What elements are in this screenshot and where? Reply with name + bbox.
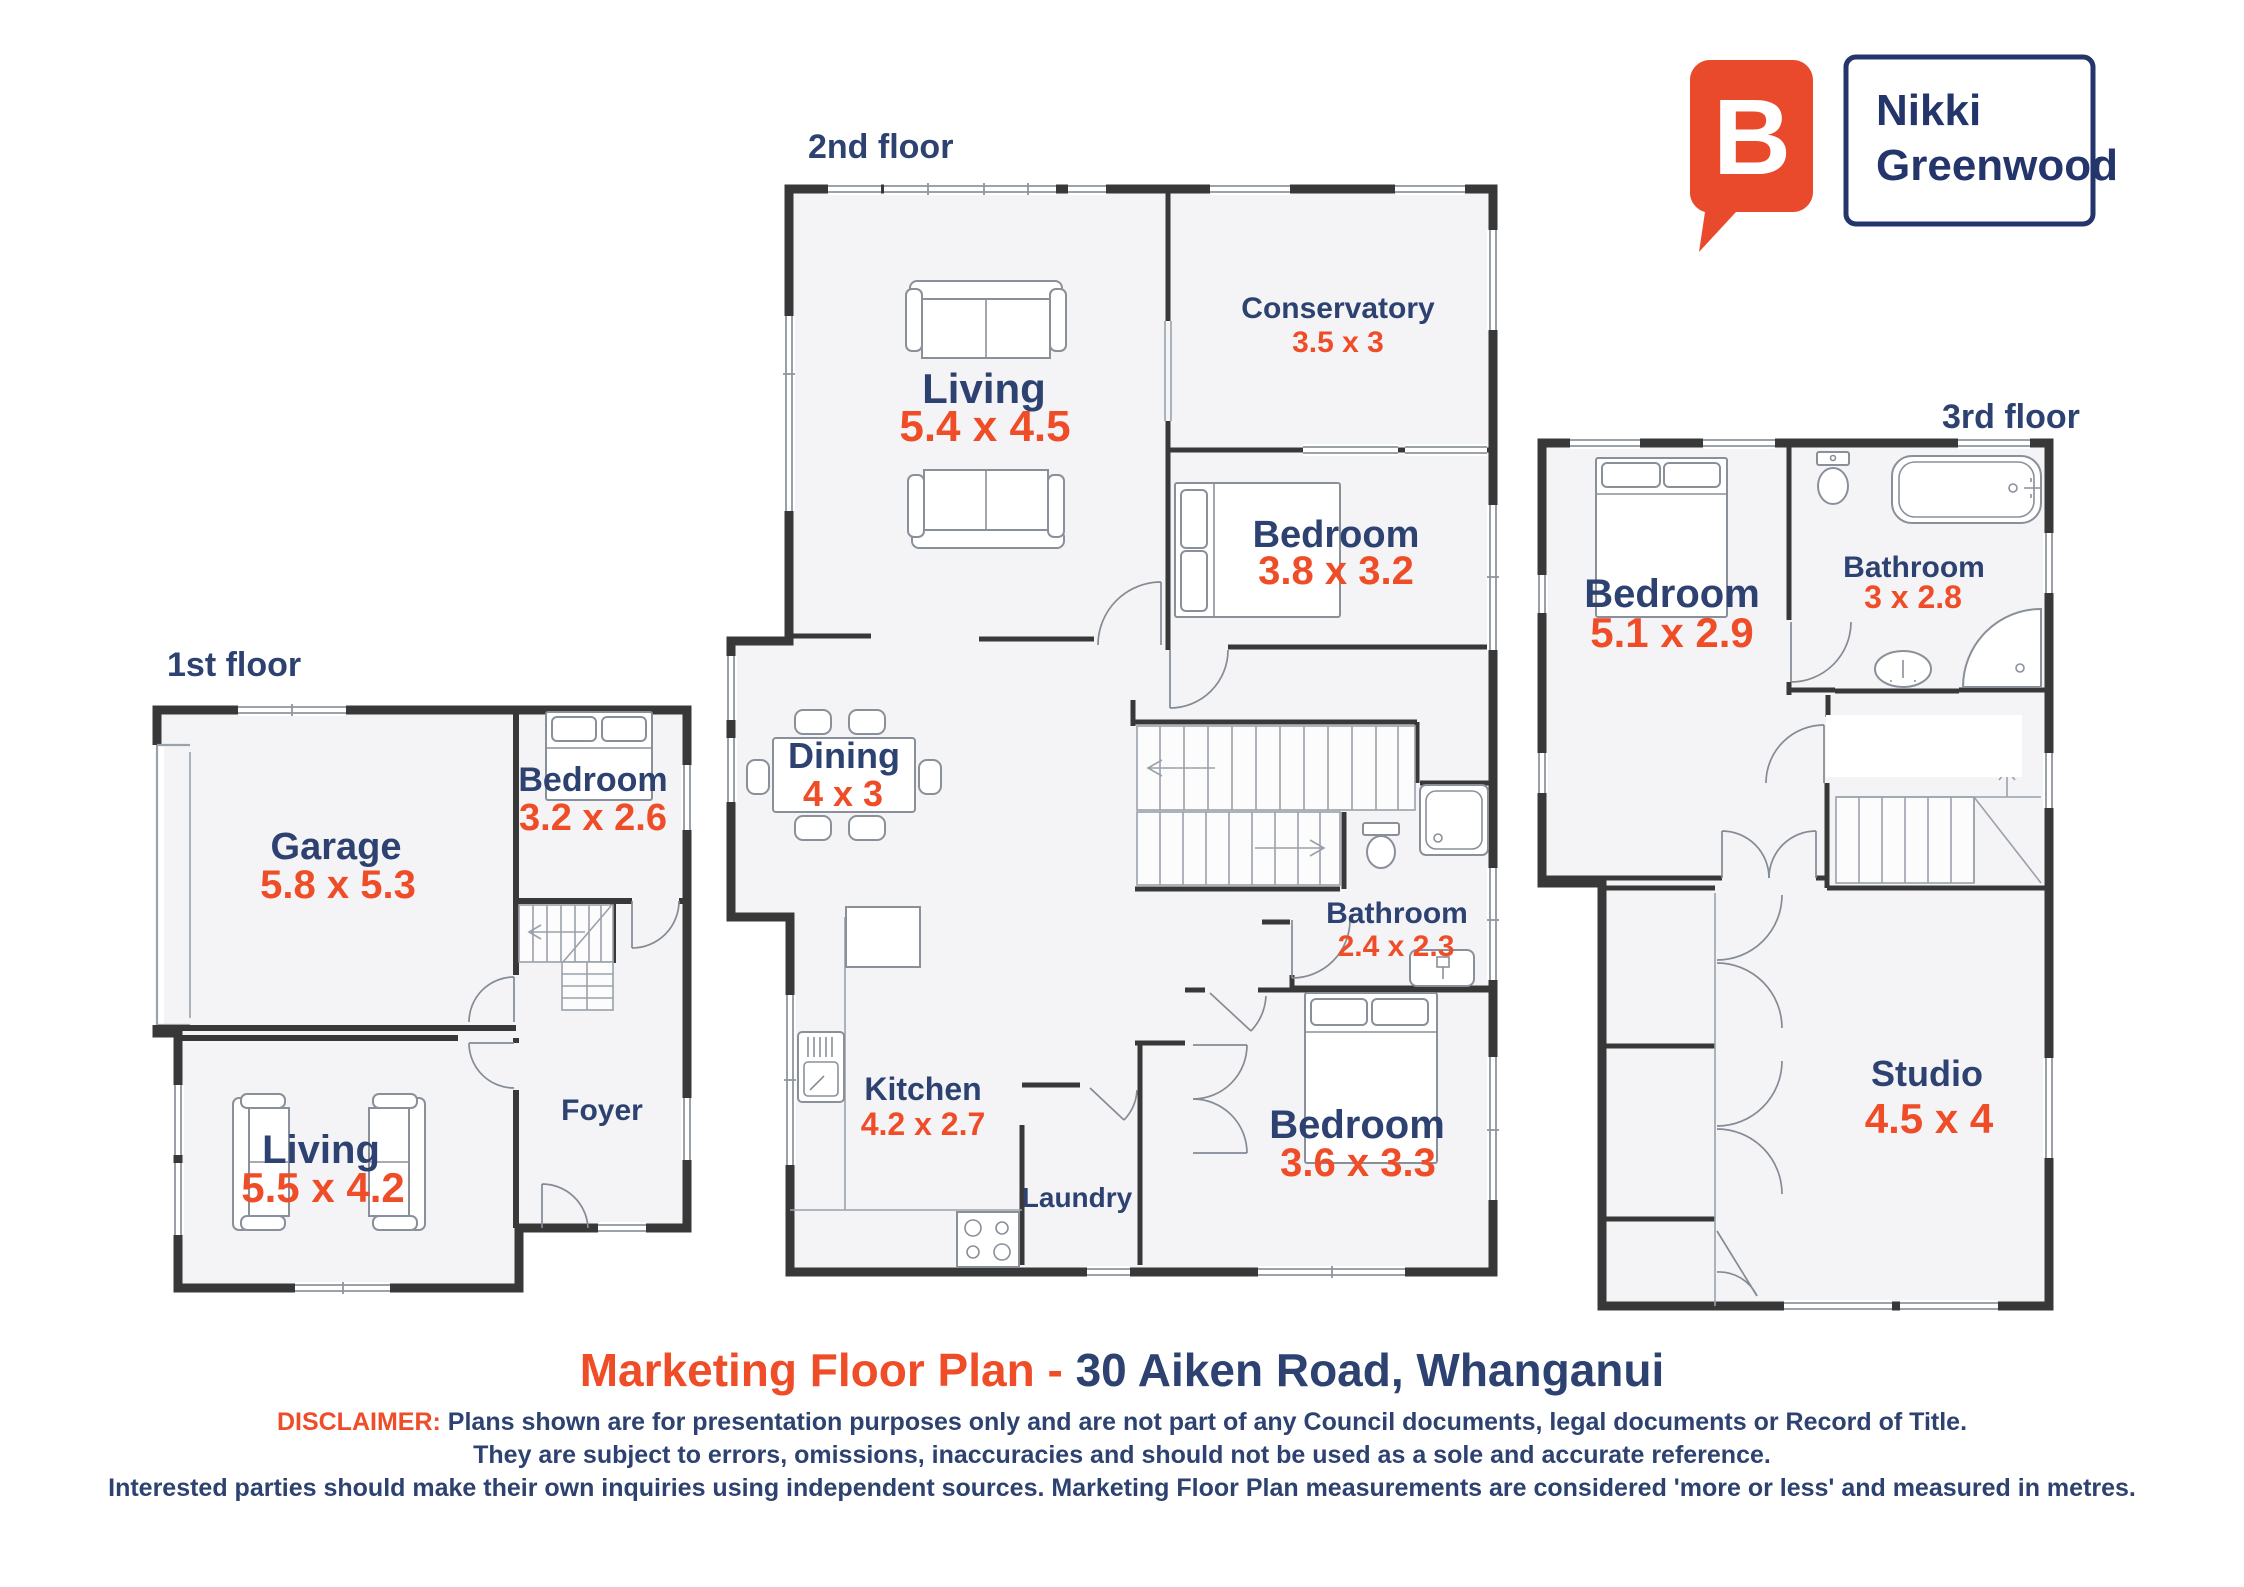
erased-label-patch	[1826, 715, 2022, 777]
room-name-foyer: Foyer	[561, 1094, 643, 1127]
floor-plan-3rd: 3rd floor Bedroom 5.1 x 2.9 Bathroom 3 x…	[1536, 398, 2080, 1312]
room-dims-studio: 4.5 x 4	[1865, 1095, 1994, 1142]
disclaimer-line1: DISCLAIMER: Plans shown are for presenta…	[277, 1408, 1967, 1436]
room-dims-living1: 5.5 x 4.2	[241, 1164, 404, 1211]
page-title: Marketing Floor Plan - 30 Aiken Road, Wh…	[580, 1344, 1665, 1396]
room-name-bathroom2: Bathroom	[1326, 897, 1468, 930]
floor2-title: 2nd floor	[808, 128, 953, 166]
room-dims-bedroom3: 5.1 x 2.9	[1590, 609, 1753, 656]
page-title-marketing: Marketing Floor Plan -	[580, 1344, 1076, 1396]
shower-icon	[1420, 785, 1488, 855]
disclaimer-line2: They are subject to errors, omissions, i…	[473, 1441, 1771, 1469]
floor3-title: 3rd floor	[1942, 398, 2080, 436]
room-dims-bedroom2a: 3.8 x 3.2	[1258, 549, 1414, 593]
room-dims-bathroom3: 3 x 2.8	[1864, 579, 1962, 615]
stove-icon	[957, 1212, 1019, 1267]
room-name-conservatory: Conservatory	[1241, 292, 1435, 325]
room-dims-dining: 4 x 3	[803, 773, 883, 814]
kitchen-sink-icon	[798, 1032, 844, 1102]
room-dims-conservatory: 3.5 x 3	[1292, 326, 1384, 359]
floor-plan-2nd: 2nd floor Living 5.4 x 4.5 Conservatory …	[725, 128, 1499, 1278]
room-name-studio: Studio	[1871, 1053, 1983, 1094]
room-dims-bathroom2: 2.4 x 2.3	[1338, 930, 1455, 963]
disclaimer-line1-text: Plans shown are for presentation purpose…	[448, 1408, 1967, 1436]
room-name-kitchen: Kitchen	[864, 1071, 981, 1107]
floor-plan-page: { "colors": { "navy": "#2D4270", "orange…	[0, 0, 2244, 1587]
room-name-laundry: Laundry	[1022, 1182, 1133, 1213]
floor1-title: 1st floor	[167, 646, 301, 684]
brand-name-line1: Nikki	[1876, 86, 1981, 135]
room-dims-kitchen: 4.2 x 2.7	[861, 1106, 986, 1142]
sofa-icon	[908, 470, 1064, 548]
bathtub-icon	[1892, 456, 2041, 523]
floor-plan-1st: 1st floor Garage 5.8 x 5.3 Bedroom 3.2 x…	[150, 646, 693, 1294]
logo-letter: B	[1713, 76, 1791, 197]
room-name-garage: Garage	[271, 826, 402, 868]
room-dims-living2: 5.4 x 4.5	[899, 402, 1070, 451]
disclaimer-line3: Interested parties should make their own…	[108, 1474, 2136, 1502]
disclaimer-label: DISCLAIMER:	[277, 1408, 441, 1436]
room-dims-bedroom1: 3.2 x 2.6	[519, 797, 667, 839]
plan-canvas: 1st floor Garage 5.8 x 5.3 Bedroom 3.2 x…	[0, 0, 2244, 1587]
sofa-icon	[906, 281, 1066, 358]
toilet-icon	[1817, 452, 1849, 504]
page-title-address: 30 Aiken Road, Whanganui	[1076, 1344, 1665, 1396]
room-name-bedroom1: Bedroom	[518, 761, 667, 799]
toilet-icon	[1363, 823, 1399, 868]
brand-name-line2: Greenwood	[1876, 141, 2118, 190]
bathroom-sink-icon	[1875, 651, 1931, 687]
room-name-dining: Dining	[788, 735, 900, 776]
room-dims-bedroom2b: 3.6 x 3.3	[1280, 1141, 1436, 1185]
brand-logo: B Nikki Greenwood	[1690, 57, 2118, 252]
room-dims-garage: 5.8 x 5.3	[260, 863, 416, 907]
